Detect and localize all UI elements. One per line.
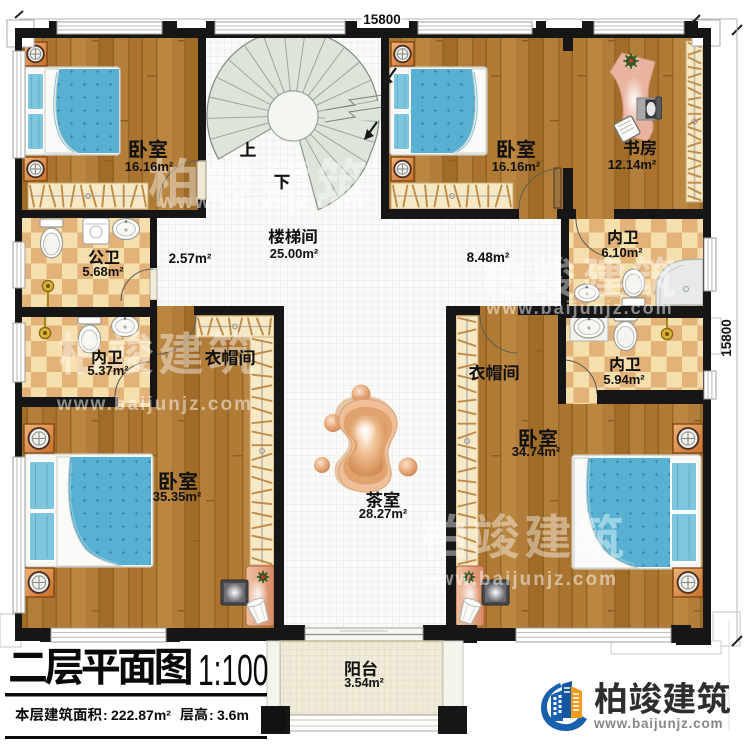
svg-text:25.00m²: 25.00m² <box>270 246 319 261</box>
svg-text:3.54m²: 3.54m² <box>344 676 384 690</box>
svg-text:8.48m²: 8.48m² <box>467 250 510 265</box>
svg-text:5.37m²: 5.37m² <box>87 363 129 378</box>
svg-text:1:100: 1:100 <box>198 646 268 695</box>
svg-text:www.baijunjz.com: www.baijunjz.com <box>421 569 618 590</box>
svg-text:35.35m²: 35.35m² <box>153 489 202 504</box>
svg-text::: : <box>209 707 214 723</box>
svg-text:34.74m²: 34.74m² <box>512 444 561 459</box>
svg-text::: : <box>103 707 108 723</box>
svg-text:15800: 15800 <box>719 319 734 357</box>
svg-text:28.27m²: 28.27m² <box>359 506 408 521</box>
svg-text:www.baijunjz.com: www.baijunjz.com <box>593 716 723 731</box>
svg-text:5.94m²: 5.94m² <box>603 372 645 387</box>
svg-text:www.baijunjz.com: www.baijunjz.com <box>56 394 253 415</box>
svg-text:3.6m: 3.6m <box>217 707 249 723</box>
svg-text:5.68m²: 5.68m² <box>82 264 124 279</box>
svg-text:2.57m²: 2.57m² <box>169 251 212 266</box>
svg-text:15800: 15800 <box>363 12 401 27</box>
svg-text:12.14m²: 12.14m² <box>608 157 657 172</box>
svg-text:www.baijunjz.com: www.baijunjz.com <box>159 191 365 213</box>
svg-text:16.16m²: 16.16m² <box>492 159 541 174</box>
svg-text:16.16m²: 16.16m² <box>125 159 174 174</box>
svg-text:222.87m²: 222.87m² <box>111 707 171 723</box>
svg-text:6.10m²: 6.10m² <box>601 245 643 260</box>
svg-text:www.baijunjz.com: www.baijunjz.com <box>485 298 673 318</box>
